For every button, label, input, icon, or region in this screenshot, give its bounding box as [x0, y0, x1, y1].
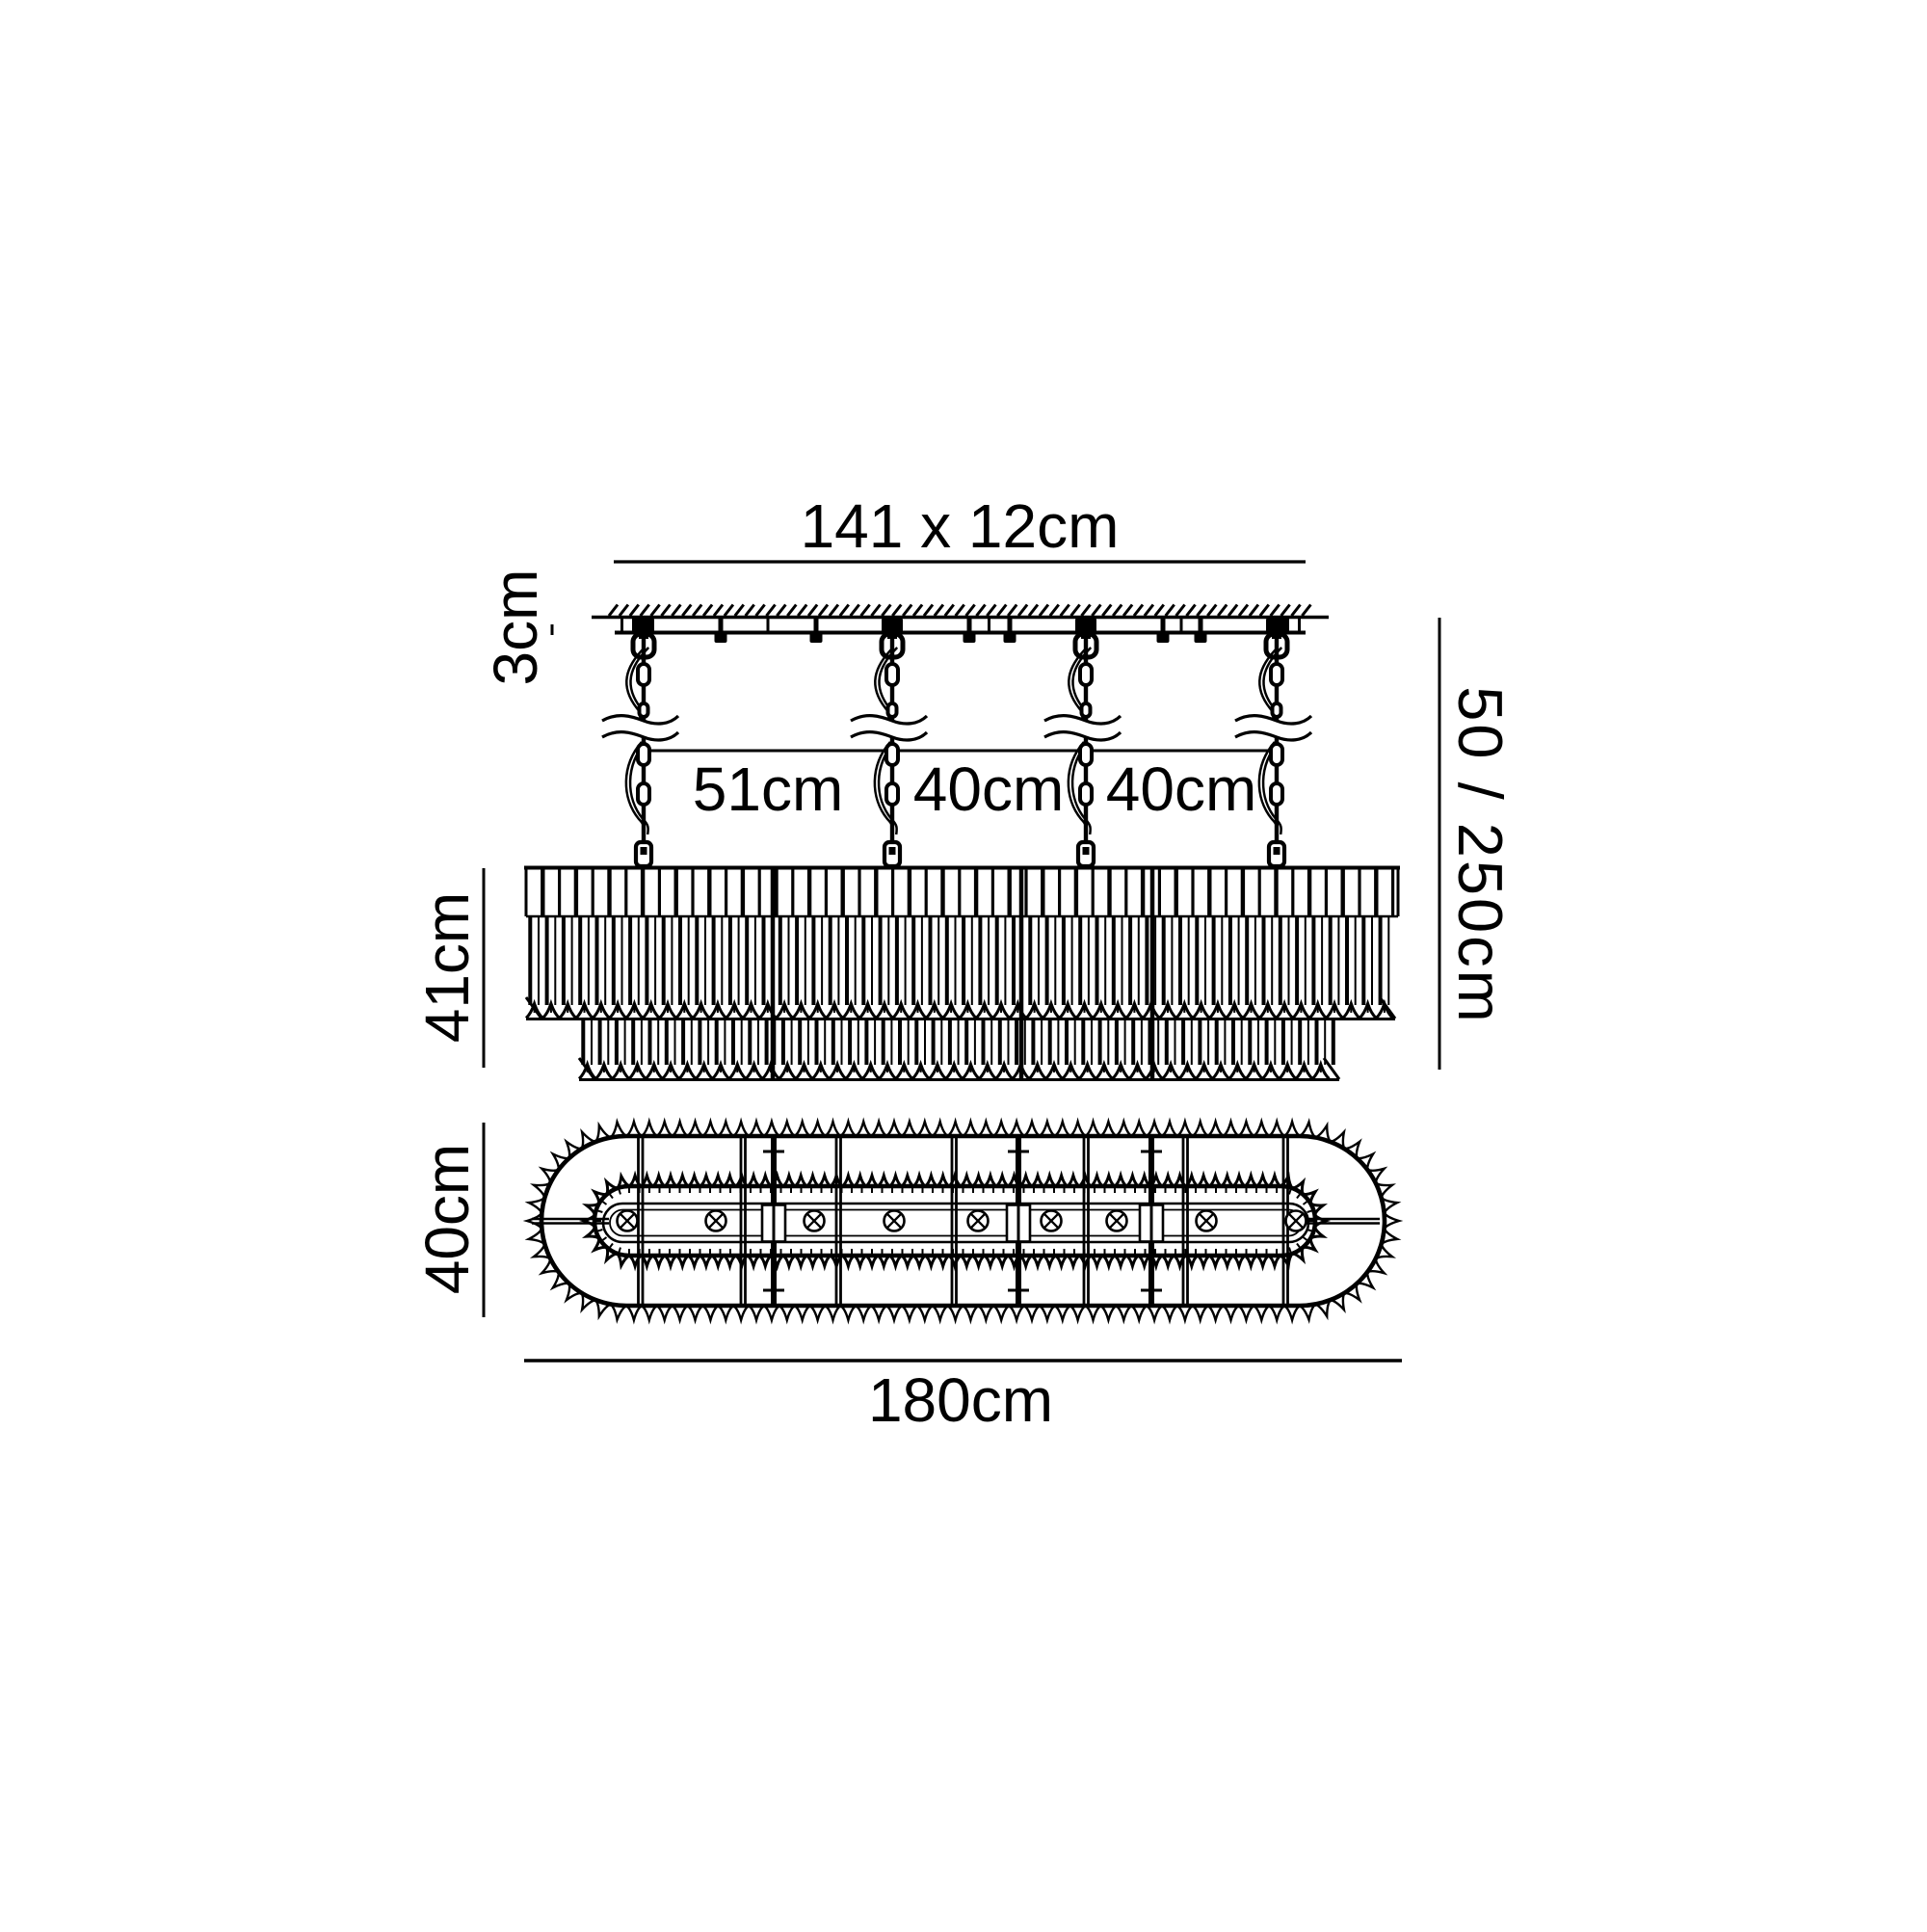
svg-text:3cm: 3cm — [481, 569, 550, 686]
svg-text:40cm: 40cm — [412, 1144, 482, 1295]
svg-text:40cm: 40cm — [913, 754, 1065, 824]
svg-text:50 / 250cm: 50 / 250cm — [1445, 686, 1516, 1025]
svg-text:180cm: 180cm — [868, 1365, 1053, 1435]
svg-text:40cm: 40cm — [1106, 754, 1257, 824]
svg-text:41cm: 41cm — [412, 892, 482, 1044]
svg-text:51cm: 51cm — [693, 754, 844, 824]
svg-text:141 x 12cm: 141 x 12cm — [801, 491, 1120, 561]
